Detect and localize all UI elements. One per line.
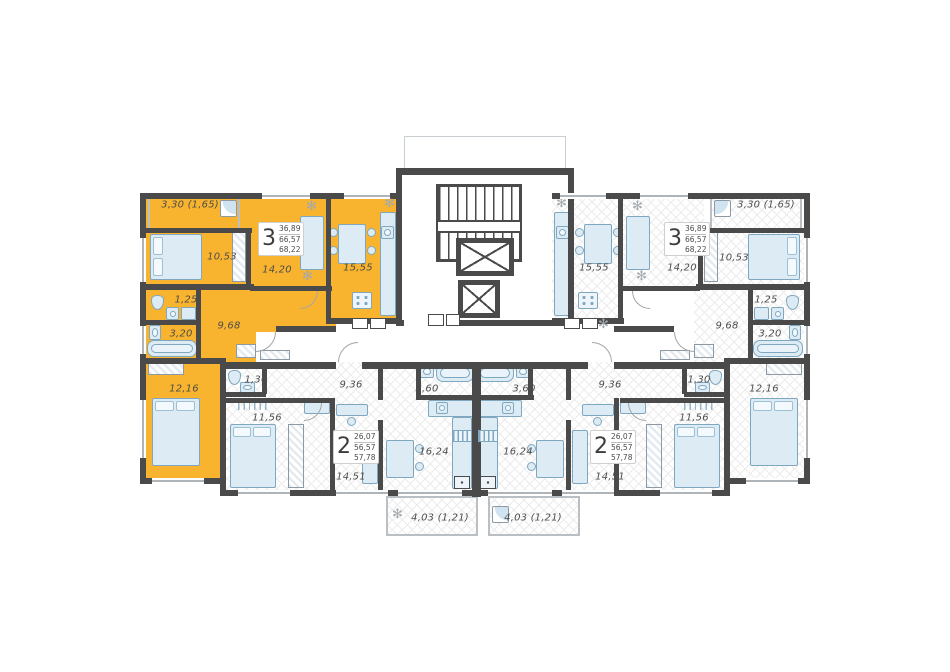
room-label-balcony: 4,03 (1,21) xyxy=(411,513,469,524)
room-label-wc: 1,30 xyxy=(687,375,710,386)
floor-plan: ✻ ✻ ✻ ✻ ✻ ✻ ✻ ✻ 3 36,89 66,57 68,22 3 36… xyxy=(0,0,950,672)
room-label-hall: 9,68 xyxy=(217,321,240,332)
room-label-balcony: 4,03 (1,21) xyxy=(504,513,562,524)
room-label-kitchen: 15,55 xyxy=(579,263,609,274)
stamp-area-usable: 66,57 xyxy=(685,235,706,245)
stamp-area-total: 57,78 xyxy=(354,453,375,463)
room-label-kitchen: 15,55 xyxy=(343,263,373,274)
apartment-right-3room[interactable] xyxy=(730,364,810,484)
room-label-bath: 3,20 xyxy=(169,329,192,340)
room-label-hall: 9,36 xyxy=(339,380,362,391)
room-label-living: 14,20 xyxy=(667,263,697,274)
stairwell-core xyxy=(396,136,574,326)
room-label-living: 14,20 xyxy=(262,265,292,276)
plant-icon: ✻ xyxy=(392,508,403,521)
room-label-wc: 1,25 xyxy=(754,295,777,306)
area-stamp: 3 36,89 66,57 68,22 xyxy=(258,222,304,256)
room-label-bedroom: 12,16 xyxy=(749,384,779,395)
room-label-bedroom: 11,56 xyxy=(679,413,709,424)
room-label-wc: 1,25 xyxy=(174,295,197,306)
room-label-living: 14,51 xyxy=(336,472,366,483)
stamp-area-living: 36,89 xyxy=(685,224,706,235)
room-label-hall: 9,68 xyxy=(715,321,738,332)
stamp-rooms-count: 2 xyxy=(337,436,351,458)
stamp-rooms-count: 2 xyxy=(594,436,608,458)
room-label-bath: 3,60 xyxy=(512,384,535,395)
stamp-area-total: 68,22 xyxy=(685,245,706,255)
room-label-kitchen: 16,24 xyxy=(419,447,449,458)
area-stamp: 3 36,89 66,57 68,22 xyxy=(664,222,710,256)
room-label-balcony: 3,30 (1,65) xyxy=(161,200,219,211)
area-stamp: 2 26,07 56,57 57,78 xyxy=(590,430,636,464)
stamp-area-usable: 56,57 xyxy=(354,443,375,453)
room-label-balcony: 3,30 (1,65) xyxy=(737,200,795,211)
room-label-bedroom: 12,16 xyxy=(169,384,199,395)
stamp-rooms-count: 3 xyxy=(262,228,276,250)
room-label-bedroom: 11,56 xyxy=(252,413,282,424)
room-label-bedroom: 10,53 xyxy=(719,253,749,264)
apartment-left-3room[interactable] xyxy=(140,364,220,484)
stamp-area-total: 68,22 xyxy=(279,245,300,255)
room-label-wc: 1,30 xyxy=(244,375,267,386)
room-label-bedroom: 10,53 xyxy=(207,252,237,263)
stamp-area-living: 36,89 xyxy=(279,224,300,235)
stamp-area-usable: 56,57 xyxy=(611,443,632,453)
stamp-area-total: 57,78 xyxy=(611,453,632,463)
stamp-area-living: 26,07 xyxy=(611,432,632,443)
room-label-bath: 3,20 xyxy=(758,329,781,340)
room-label-kitchen: 16,24 xyxy=(503,447,533,458)
stamp-area-living: 26,07 xyxy=(354,432,375,443)
area-stamp: 2 26,07 56,57 57,78 xyxy=(333,430,379,464)
room-label-hall: 9,36 xyxy=(598,380,621,391)
room-label-bath: 3,60 xyxy=(415,384,438,395)
stamp-area-usable: 66,57 xyxy=(279,235,300,245)
stamp-rooms-count: 3 xyxy=(668,228,682,250)
room-label-living: 14,51 xyxy=(595,472,625,483)
